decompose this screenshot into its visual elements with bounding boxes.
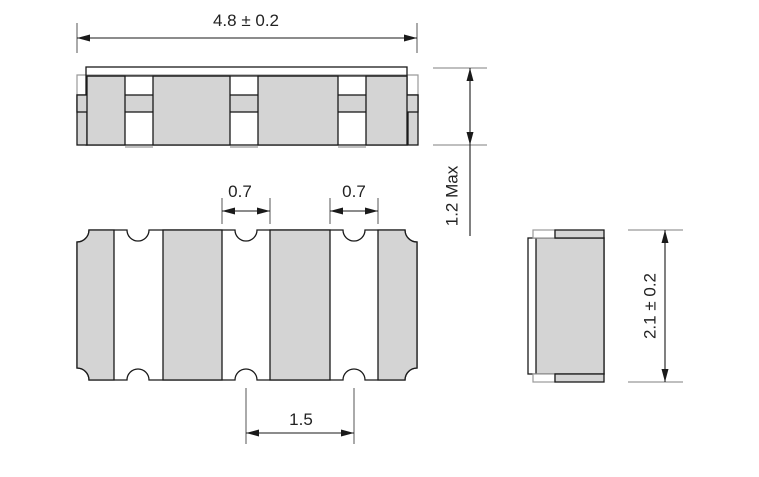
- electrode-block: [153, 76, 230, 145]
- terminal-strip-right: [378, 230, 417, 380]
- arrowhead-right: [257, 208, 270, 215]
- arrowhead-right: [341, 430, 354, 437]
- electrode-block: [87, 76, 125, 145]
- electrode-block: [258, 76, 338, 145]
- arrowhead-down: [662, 369, 669, 382]
- dim-notch-width-left: 0.7: [222, 182, 270, 224]
- dim-overall-width: 4.8 ± 0.2: [77, 11, 417, 53]
- dim-notch-width-left-label: 0.7: [228, 182, 252, 201]
- front-view: [77, 67, 418, 147]
- terminal-strip-mid-left: [163, 230, 222, 380]
- side-view: [528, 230, 604, 382]
- dim-notch-pitch-label: 1.5: [289, 410, 313, 429]
- side-bottom-substrate-edge: [533, 374, 555, 382]
- side-top-substrate-edge: [533, 230, 555, 238]
- terminal-strip-left: [77, 230, 114, 380]
- dim-notch-pitch: 1.5: [246, 388, 354, 444]
- arrowhead-left: [222, 208, 235, 215]
- electrode-block: [366, 76, 407, 145]
- arrowhead-left: [246, 430, 259, 437]
- terminal-strip-mid-right: [270, 230, 330, 380]
- dim-max-height: 1.2 Max: [433, 68, 487, 236]
- arrowhead-up: [467, 68, 474, 81]
- dim-overall-width-label: 4.8 ± 0.2: [213, 11, 279, 30]
- bottom-view: [77, 230, 417, 380]
- arrowhead-left: [330, 208, 343, 215]
- dim-notch-width-right: 0.7: [330, 182, 378, 224]
- dim-body-depth: 2.1 ± 0.2: [628, 230, 683, 382]
- side-top-electrode: [555, 230, 604, 238]
- side-body-fill: [536, 238, 604, 374]
- side-bottom-electrode: [555, 374, 604, 382]
- arrowhead-left: [77, 35, 90, 42]
- dim-max-height-label: 1.2 Max: [443, 165, 462, 226]
- technical-drawing: 4.8 ± 0.2 1.2 Max 0.7 0.7: [0, 0, 759, 477]
- arrowhead-right: [404, 35, 417, 42]
- bottom-view-outline: [77, 230, 417, 380]
- dim-notch-width-right-label: 0.7: [342, 182, 366, 201]
- dim-body-depth-label: 2.1 ± 0.2: [641, 273, 660, 339]
- technical-drawing-page: 4.8 ± 0.2 1.2 Max 0.7 0.7: [0, 0, 759, 477]
- arrowhead-down: [467, 132, 474, 145]
- arrowhead-up: [662, 230, 669, 243]
- arrowhead-right: [365, 208, 378, 215]
